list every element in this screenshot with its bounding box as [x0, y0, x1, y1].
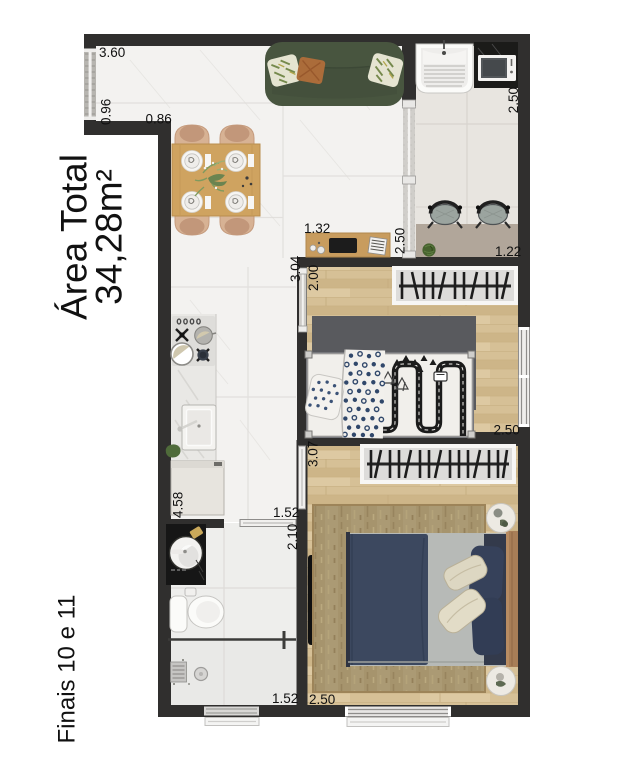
svg-text:3.07: 3.07	[306, 441, 321, 467]
svg-text:3.04: 3.04	[288, 255, 303, 282]
svg-text:1.52: 1.52	[272, 691, 298, 706]
svg-text:2.00: 2.00	[306, 265, 321, 291]
svg-text:1.22: 1.22	[495, 244, 521, 259]
svg-text:34,28m²: 34,28m²	[89, 169, 130, 305]
svg-text:4.58: 4.58	[171, 492, 186, 518]
svg-text:2.50: 2.50	[506, 87, 521, 113]
svg-text:2.50: 2.50	[392, 228, 407, 254]
svg-text:0.96: 0.96	[99, 99, 114, 125]
svg-text:Finais 10 e 11: Finais 10 e 11	[54, 595, 81, 744]
svg-text:1.52: 1.52	[273, 505, 299, 520]
svg-text:2.50: 2.50	[494, 423, 520, 438]
svg-text:2.50: 2.50	[309, 692, 335, 707]
svg-text:3.60: 3.60	[99, 45, 125, 60]
svg-text:0.86: 0.86	[146, 112, 172, 127]
svg-text:1.32: 1.32	[304, 221, 330, 236]
svg-text:2.10: 2.10	[285, 524, 300, 550]
